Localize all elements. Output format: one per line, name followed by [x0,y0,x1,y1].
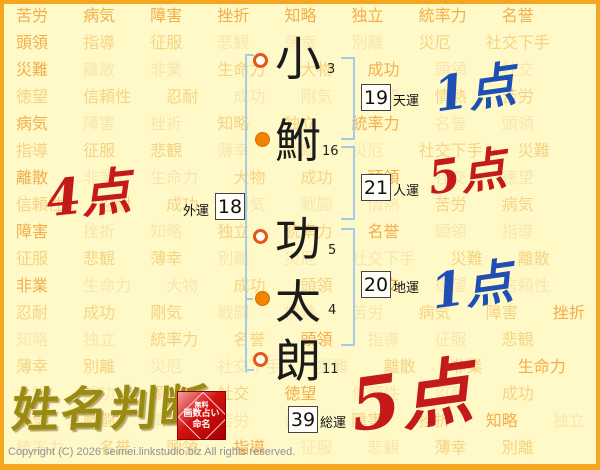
tenun-bracket-tick-bottom [341,138,353,140]
jinun-label: 人運 [393,180,419,199]
tenun-score: 1点 [431,61,518,120]
gaiun-score: 4点 [44,166,134,225]
name-char-5: 朗 [272,338,324,384]
gaiun-bracket-line [245,54,247,372]
jinun-value-box: 21 [361,174,391,201]
name-char-4: 太 [272,279,324,325]
seal-line-2: 画数占い [183,409,219,419]
tenun-bracket-tick-top [341,57,353,59]
gaiun-value-box: 18 [215,193,245,220]
name-char-3: 功 [272,216,324,262]
gaiun-label: 外運 [183,200,209,219]
jinun-score: 5点 [425,145,509,201]
gaiun-bracket-tick-middle [245,298,253,300]
seimei-handan-result-page: 苦労 病気 障害 挫折 知略 独立 統率力 名誉 頭領 指導 征服 悲観 薄幸 … [0,0,600,470]
char-marker-1 [253,53,268,68]
seal-line-1: 無料 [195,401,209,409]
char-marker-3 [253,229,268,244]
chiun-bracket-tick-top [341,228,353,230]
stroke-count-1: 3 [327,62,335,77]
stroke-count-4: 4 [328,303,336,318]
tenun-bracket-line [353,57,355,140]
name-char-2: 鮒 [272,118,324,164]
chiun-bracket-line [353,228,355,346]
stroke-count-5: 11 [322,362,339,377]
soun-score: 5点 [346,354,477,442]
frame-border-right [596,0,600,470]
chiun-bracket-tick-bottom [341,344,353,346]
frame-border-top [0,0,600,4]
copyright-text: Copyright (C) 2026 seimei.linkstudio.biz… [8,446,295,458]
tenun-label: 天運 [393,90,419,109]
chiun-value-box: 20 [361,271,391,298]
char-marker-2 [255,132,270,147]
tenun-value-box: 19 [361,84,391,111]
stroke-count-3: 5 [328,243,336,258]
name-char-1: 小 [272,36,324,82]
chiun-label: 地運 [393,277,419,296]
frame-border-bottom [0,464,600,470]
stroke-count-2: 16 [322,144,339,159]
jinun-bracket-line [353,146,355,220]
char-marker-4 [255,291,270,306]
jinun-bracket-tick-bottom [341,218,353,220]
jinun-bracket-tick-top [341,146,353,148]
soun-value-box: 39 [288,406,318,433]
gaiun-bracket-tick-bottom [245,369,254,371]
free-naming-seal-stamp: 無料 画数占い 命名 [177,391,226,440]
soun-label: 総運 [320,412,346,431]
gaiun-bracket-tick-top [245,54,254,56]
char-marker-5 [253,352,268,367]
seal-line-3: 命名 [192,420,210,430]
frame-border-left [0,0,4,470]
chiun-score: 1点 [428,258,515,317]
